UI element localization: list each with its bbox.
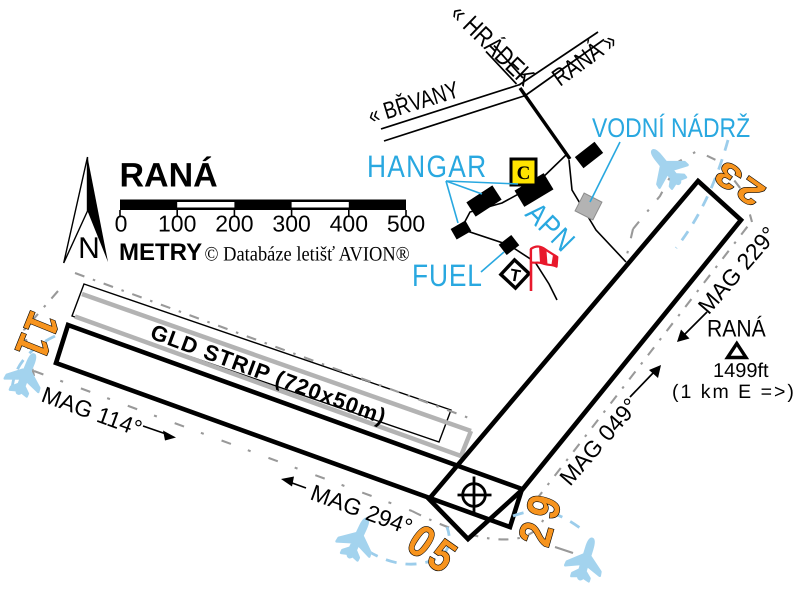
svg-text:C: C [517, 163, 531, 184]
svg-text:N: N [78, 232, 100, 265]
svg-text:300: 300 [272, 211, 310, 237]
svg-text:METRY: METRY [119, 239, 202, 266]
svg-text:VODNÍ NÁDRŽ: VODNÍ NÁDRŽ [592, 113, 750, 143]
svg-text:400: 400 [330, 211, 368, 237]
svg-text:100: 100 [158, 211, 196, 237]
svg-text:200: 200 [215, 211, 253, 237]
svg-text:0: 0 [115, 211, 128, 237]
svg-text:HANGAR: HANGAR [367, 149, 487, 184]
svg-text:500: 500 [387, 211, 425, 237]
svg-text:RANÁ: RANÁ [707, 316, 766, 343]
svg-text:(1 km E =>): (1 km E =>) [672, 381, 796, 403]
svg-text:© Databáze letišť AVION®: © Databáze letišť AVION® [205, 244, 410, 266]
svg-text:1499ft: 1499ft [713, 360, 769, 382]
svg-text:FUEL: FUEL [412, 258, 483, 293]
svg-text:RANÁ: RANÁ [120, 156, 218, 195]
